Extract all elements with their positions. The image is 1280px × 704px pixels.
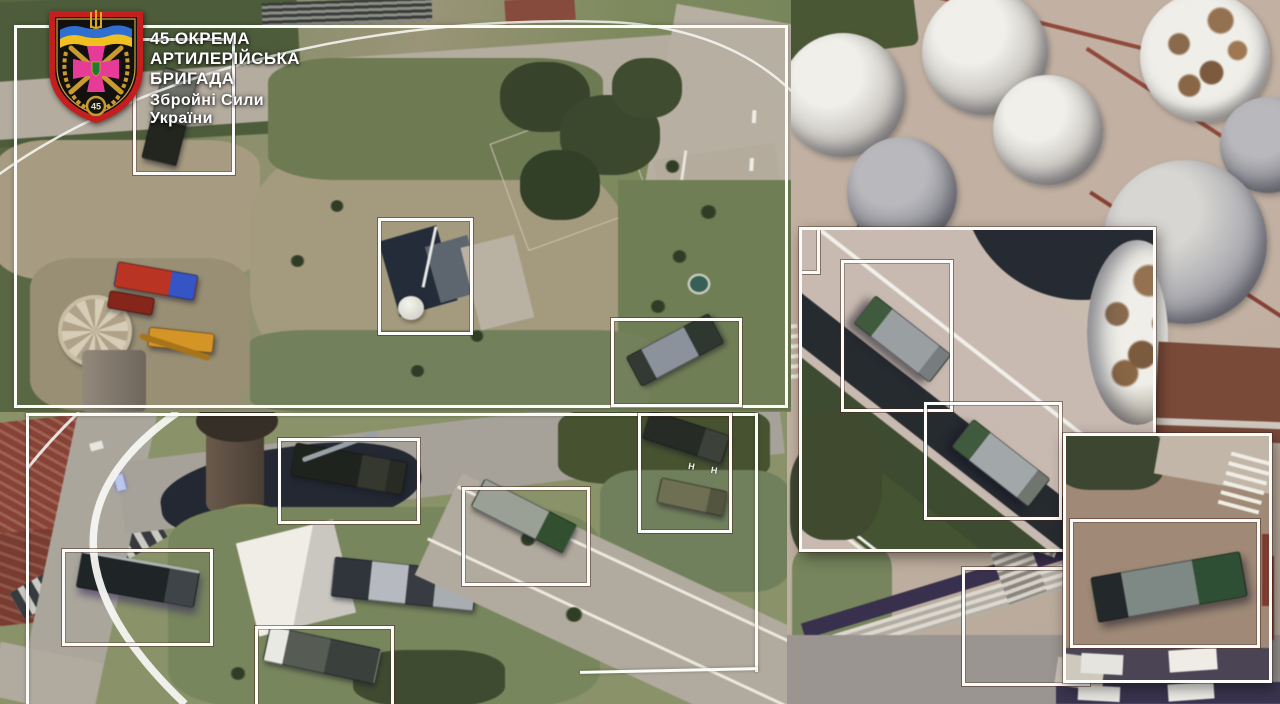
emblem-number: 45 [91, 102, 101, 112]
panel-border-right [755, 413, 758, 672]
white-truck-roof [1167, 681, 1214, 701]
storage-tank [993, 75, 1103, 185]
tree-cluster [799, 410, 882, 540]
vehicle-highlight-box-b1 [1070, 519, 1260, 648]
vehicle-highlight-box-l2 [62, 549, 213, 646]
green-shield [92, 62, 100, 76]
vehicle-highlight-box-l3 [255, 626, 394, 704]
vehicle-highlight-box-a2 [924, 402, 1062, 520]
armed-forces-label: Збройні Сили України [150, 92, 300, 128]
video-frame: Н Н [0, 0, 1280, 704]
red-roof-hut [504, 0, 576, 24]
tree-cluster [1063, 433, 1163, 490]
vehicle-highlight-box-l4 [462, 487, 590, 586]
white-truck-roof [1081, 653, 1124, 675]
bush [230, 667, 246, 680]
vehicle-highlight-box-l5 [638, 413, 732, 533]
brigade-name: 45 ОКРЕМА АРТИЛЕРІЙСЬКА БРИГАДА [150, 29, 300, 89]
panel-border-left [26, 413, 29, 704]
white-truck-roof [1078, 685, 1121, 702]
vehicle-highlight-box-a0 [799, 227, 820, 274]
brigade-title: 45 ОКРЕМА АРТИЛЕРІЙСЬКА БРИГАДА Збройні … [150, 29, 300, 128]
inset-panel-b [1063, 433, 1272, 683]
brigade-emblem: 45 [46, 6, 146, 124]
red-strip [1262, 534, 1272, 606]
bush [565, 607, 583, 622]
vehicle-highlight-box-l1 [278, 438, 420, 524]
bottom-left-photo: Н Н [0, 412, 787, 704]
vehicle-highlight-box-t2 [378, 218, 473, 335]
rail-fence [262, 0, 433, 27]
vehicle-highlight-box-t3 [611, 318, 742, 407]
white-truck-roof [1168, 647, 1217, 672]
vehicle-highlight-box-a1 [841, 260, 953, 412]
